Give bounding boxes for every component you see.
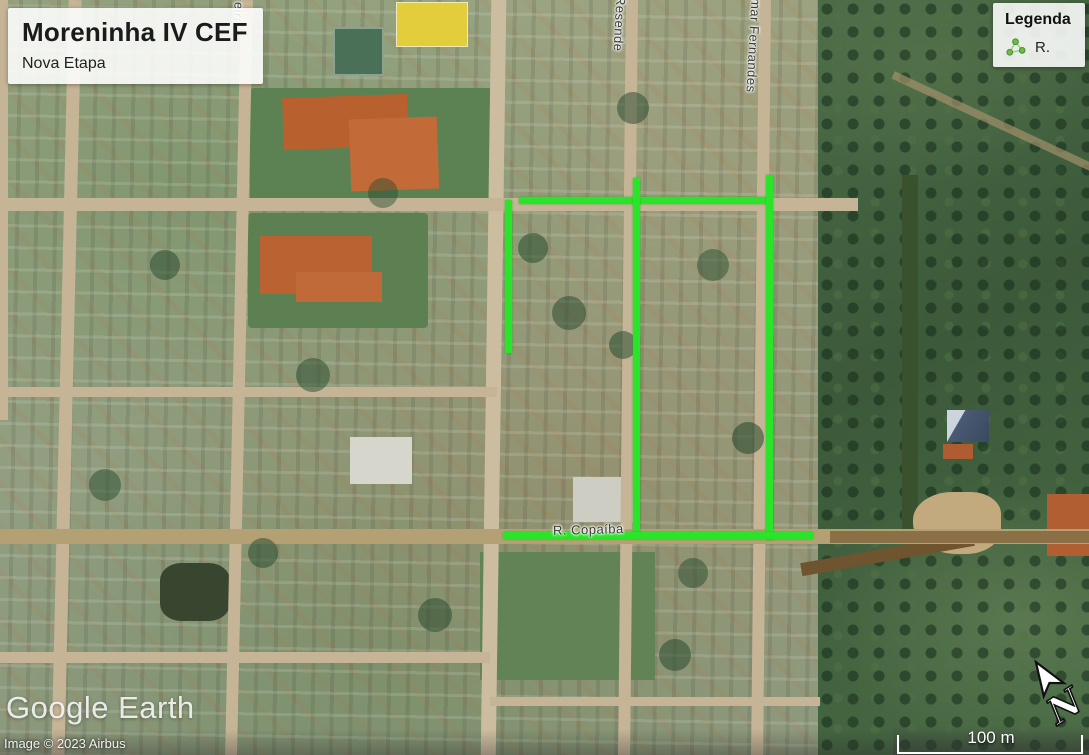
legend-title: Legenda — [1005, 11, 1075, 29]
imagery-attribution: Image © 2023 Airbus — [4, 736, 126, 751]
scale-label: 100 m — [893, 728, 1089, 748]
street-label: mar Fernandes — [744, 0, 764, 93]
legend-item-label: R. — [1035, 39, 1050, 56]
scale-bar: 100 m — [893, 726, 1089, 755]
street-label: Resende — [611, 0, 629, 52]
street-labels: R. CopaíbaResendemar Fernandeseira — [0, 0, 1089, 755]
legend-item: R. — [1005, 37, 1075, 58]
street-label: R. Copaíba — [553, 521, 624, 538]
map-title: Moreninha IV CEF — [22, 17, 248, 48]
google-earth-logo: Google Earth — [6, 690, 195, 726]
path-icon — [1005, 37, 1026, 58]
map-subtitle: Nova Etapa — [22, 55, 248, 73]
map-canvas[interactable]: R. CopaíbaResendemar Fernandeseira Moren… — [0, 0, 1089, 755]
legend-panel: Legenda R. — [993, 3, 1085, 67]
title-panel: Moreninha IV CEF Nova Etapa — [8, 8, 263, 84]
